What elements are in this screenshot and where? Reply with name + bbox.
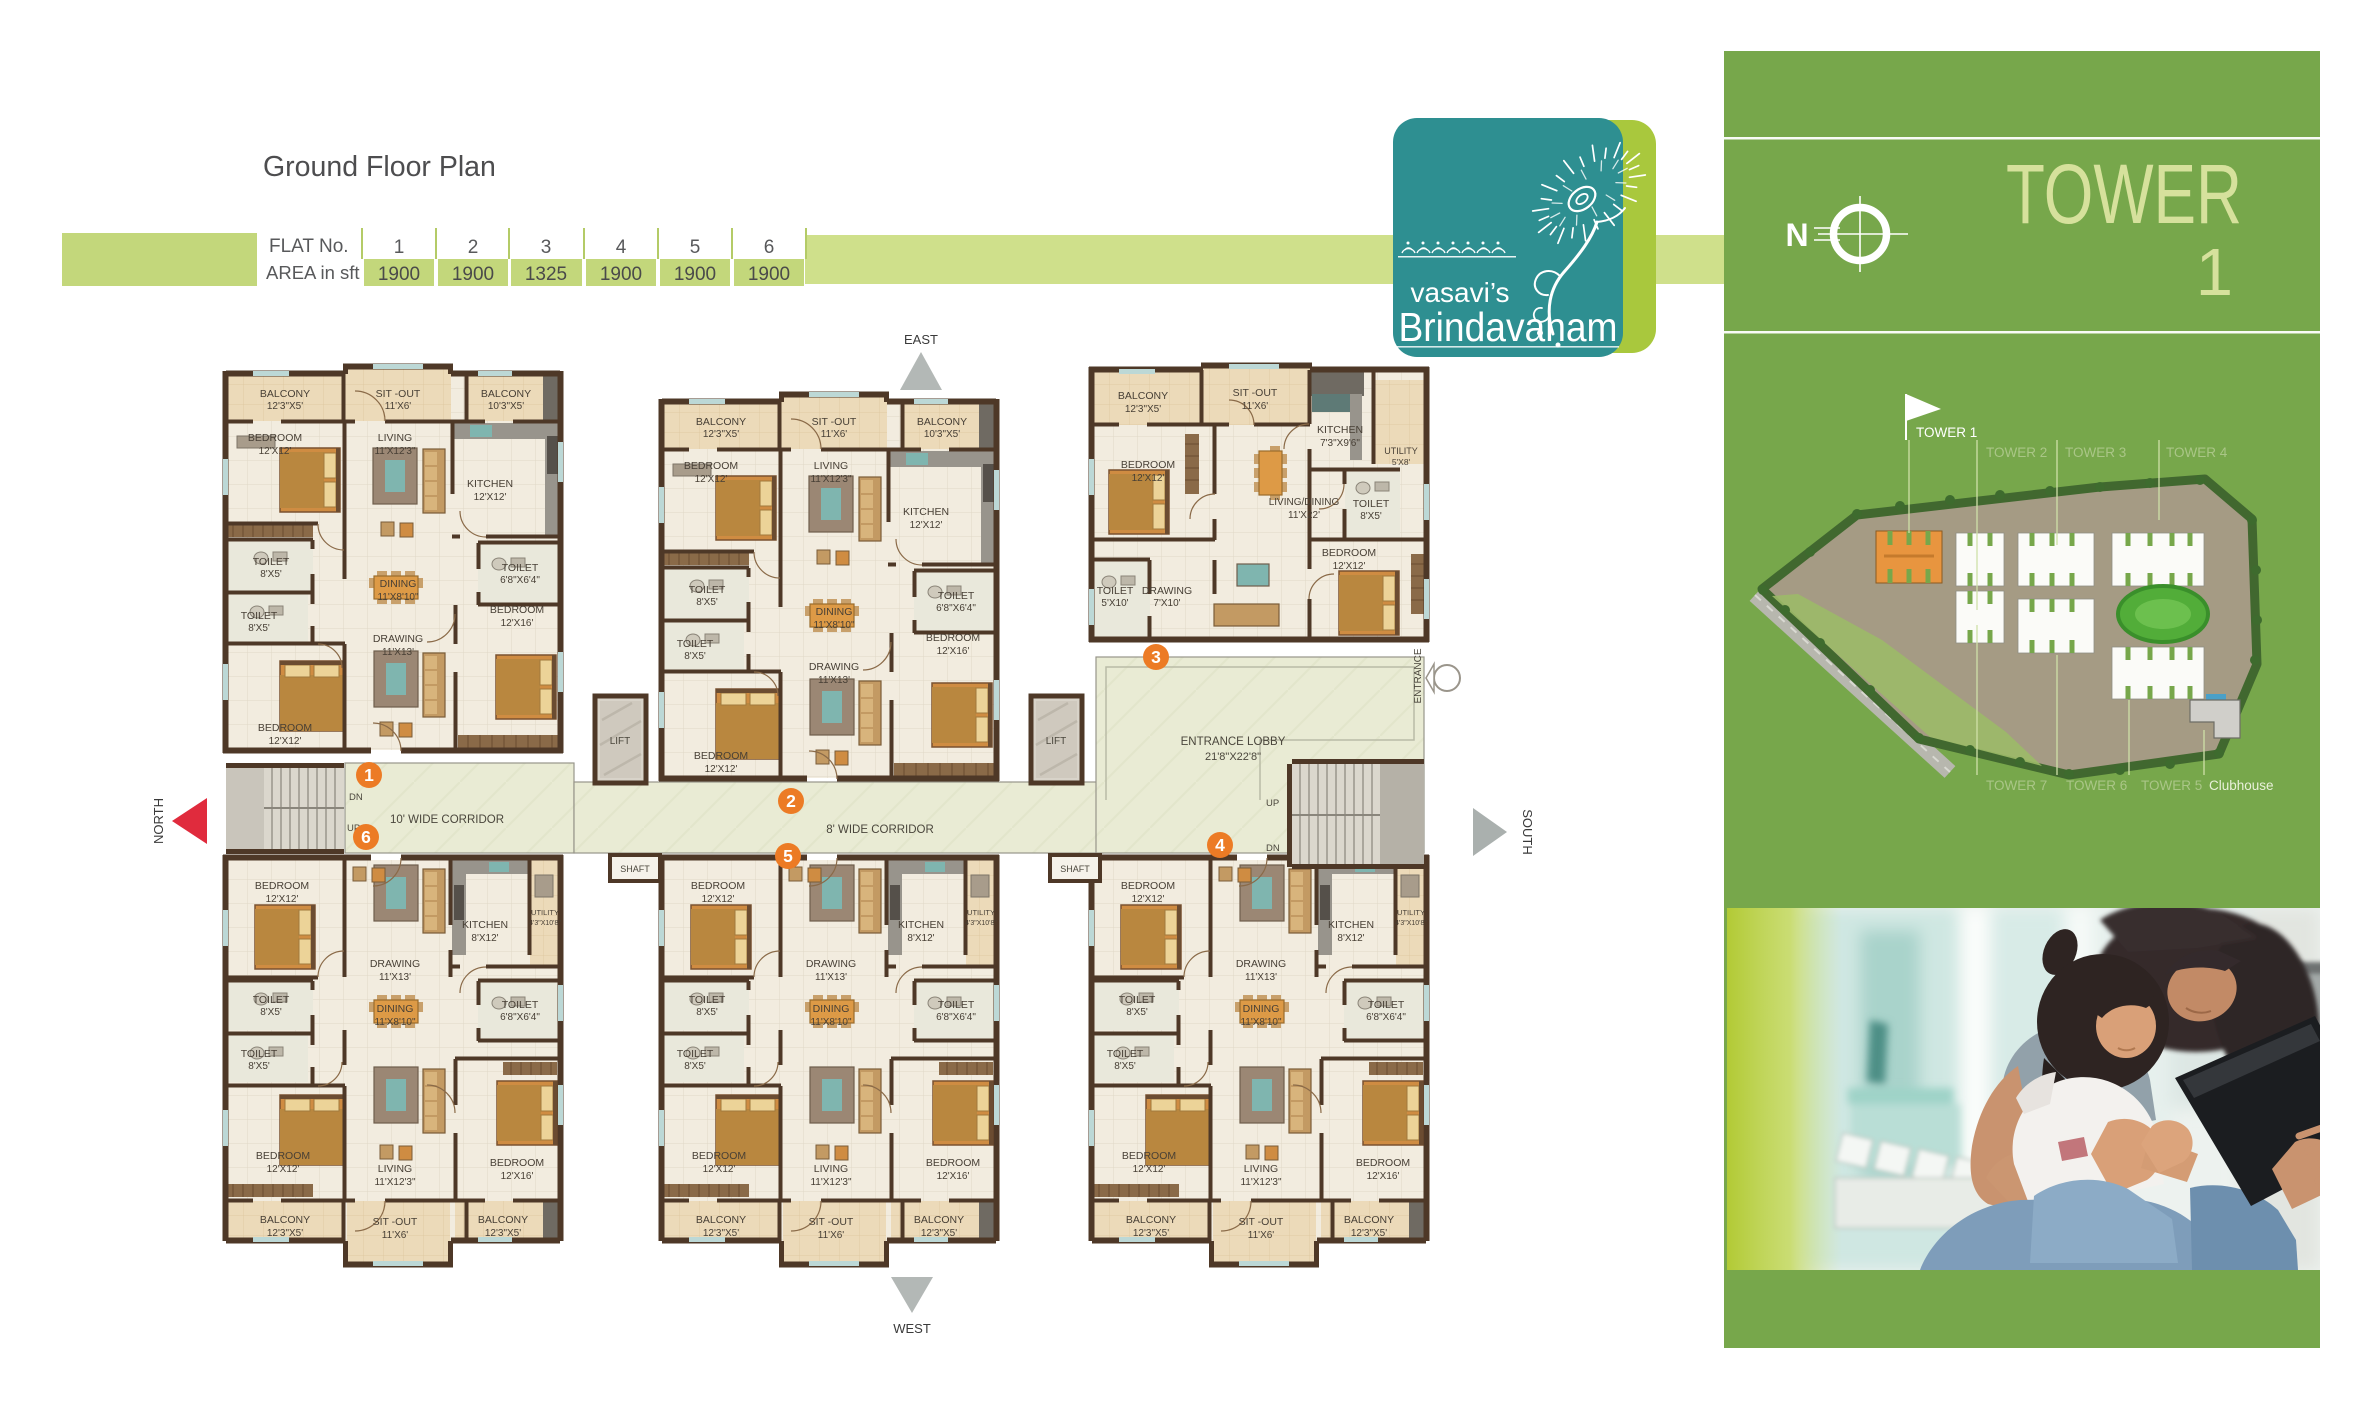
- svg-text:ENTRANCE LOBBY: ENTRANCE LOBBY: [1181, 736, 1286, 748]
- svg-text:LIFT: LIFT: [610, 736, 631, 747]
- svg-text:TOWER 3: TOWER 3: [2065, 445, 2126, 460]
- svg-text:TOWER 7: TOWER 7: [1986, 778, 2047, 793]
- svg-text:2: 2: [786, 791, 796, 811]
- svg-text:6: 6: [764, 237, 775, 258]
- svg-text:1: 1: [364, 765, 374, 785]
- svg-text:TOWER 5: TOWER 5: [2141, 778, 2202, 793]
- svg-text:Clubhouse: Clubhouse: [2209, 778, 2274, 793]
- svg-text:1325: 1325: [525, 264, 567, 285]
- svg-text:SHAFT: SHAFT: [1060, 864, 1090, 874]
- svg-text:2: 2: [468, 237, 479, 258]
- svg-text:6: 6: [361, 827, 371, 847]
- svg-text:EAST: EAST: [904, 332, 938, 347]
- svg-text:4: 4: [1215, 835, 1225, 855]
- svg-text:1900: 1900: [452, 264, 494, 285]
- svg-text:N: N: [1785, 217, 1808, 253]
- svg-text:TOWER 6: TOWER 6: [2066, 778, 2127, 793]
- svg-text:SOUTH: SOUTH: [1520, 809, 1535, 855]
- svg-text:LIFT: LIFT: [1046, 736, 1067, 747]
- svg-text:TOWER 2: TOWER 2: [1986, 445, 2047, 460]
- svg-text:TOWER 4: TOWER 4: [2166, 445, 2228, 460]
- svg-text:TOWER 1: TOWER 1: [1916, 425, 1977, 440]
- svg-text:1900: 1900: [674, 264, 716, 285]
- svg-text:10' WIDE CORRIDOR: 10' WIDE CORRIDOR: [390, 814, 504, 826]
- svg-text:3: 3: [1151, 647, 1161, 667]
- svg-text:1900: 1900: [378, 264, 420, 285]
- svg-text:Brindavanam: Brindavanam: [1399, 304, 1618, 350]
- svg-text:1: 1: [2196, 235, 2233, 310]
- svg-text:AREA in sft: AREA in sft: [266, 262, 360, 283]
- svg-text:1900: 1900: [748, 264, 790, 285]
- svg-text:WEST: WEST: [893, 1321, 931, 1336]
- svg-text:SHAFT: SHAFT: [620, 864, 650, 874]
- svg-text:5: 5: [690, 237, 701, 258]
- svg-text:UP: UP: [1266, 798, 1279, 809]
- svg-text:TOWER: TOWER: [2006, 147, 2242, 241]
- svg-text:Ground Floor Plan: Ground Floor Plan: [263, 151, 496, 183]
- svg-text:3: 3: [541, 237, 552, 258]
- svg-text:4: 4: [616, 237, 627, 258]
- svg-text:DN: DN: [349, 792, 363, 803]
- svg-text:ENTRANCE: ENTRANCE: [1413, 648, 1424, 703]
- svg-text:1900: 1900: [600, 264, 642, 285]
- svg-text:1: 1: [394, 237, 405, 258]
- svg-text:DN: DN: [1266, 843, 1280, 854]
- svg-text:5: 5: [783, 846, 793, 866]
- svg-text:8' WIDE CORRIDOR: 8' WIDE CORRIDOR: [826, 824, 934, 836]
- svg-text:FLAT No.: FLAT No.: [269, 236, 349, 257]
- svg-text:NORTH: NORTH: [151, 798, 166, 844]
- svg-text:21'8"X22'8": 21'8"X22'8": [1205, 751, 1261, 763]
